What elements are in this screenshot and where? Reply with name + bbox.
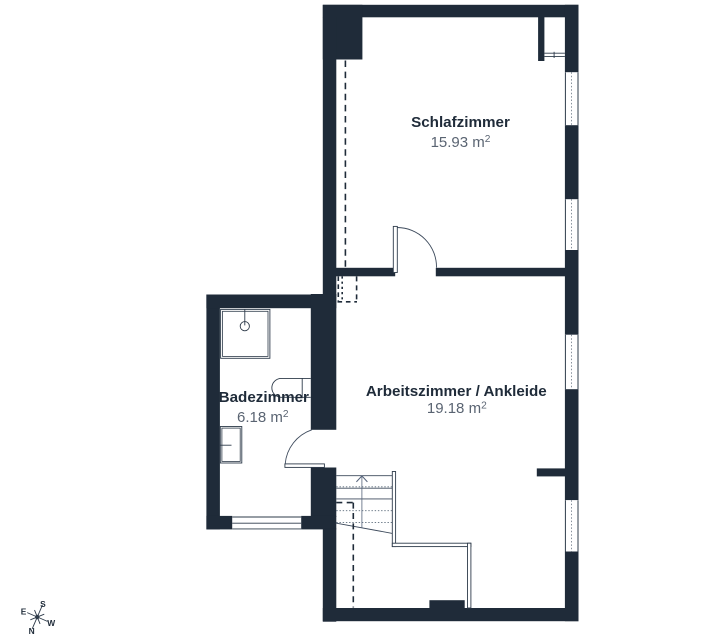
svg-text:Schlafzimmer: Schlafzimmer [411, 114, 510, 131]
svg-text:19.18 m2: 19.18 m2 [427, 400, 487, 417]
svg-text:N: N [29, 626, 35, 636]
svg-text:W: W [47, 618, 55, 628]
svg-text:6.18 m2: 6.18 m2 [237, 409, 289, 426]
svg-text:E: E [21, 607, 27, 617]
svg-text:15.93 m2: 15.93 m2 [431, 134, 491, 151]
svg-text:Arbeitszimmer / Ankleide: Arbeitszimmer / Ankleide [366, 383, 547, 400]
svg-text:Badezimmer: Badezimmer [219, 389, 309, 406]
svg-text:S: S [40, 599, 46, 609]
